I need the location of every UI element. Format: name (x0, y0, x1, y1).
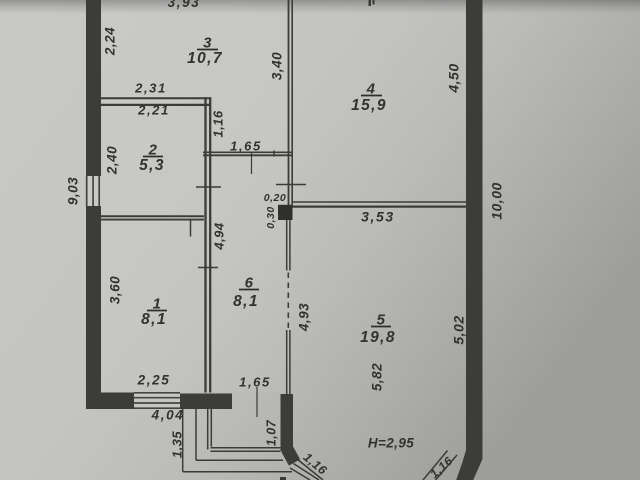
svg-text:3,40: 3,40 (270, 52, 285, 80)
svg-text:5,82: 5,82 (370, 363, 385, 391)
svg-text:2,31: 2,31 (134, 81, 167, 96)
svg-text:2,40: 2,40 (105, 146, 120, 175)
svg-text:2,24: 2,24 (103, 27, 118, 56)
svg-text:1,65: 1,65 (230, 139, 262, 154)
svg-text:3,53: 3,53 (361, 209, 395, 225)
svg-text:19,8: 19,8 (360, 329, 396, 346)
svg-text:0,30: 0,30 (265, 206, 277, 228)
svg-text:1,16: 1,16 (211, 110, 226, 138)
svg-text:8,1: 8,1 (233, 293, 259, 310)
svg-text:5,02: 5,02 (451, 315, 467, 344)
svg-text:4,93: 4,93 (297, 303, 312, 332)
svg-text:4,94: 4,94 (212, 222, 227, 251)
svg-text:10,00: 10,00 (489, 182, 505, 220)
svg-text:1,35: 1,35 (170, 431, 185, 459)
svg-text:8,1: 8,1 (141, 311, 167, 328)
svg-text:3,93: 3,93 (168, 0, 201, 10)
svg-text:1,07: 1,07 (265, 419, 279, 446)
svg-text:2,25: 2,25 (137, 373, 171, 388)
svg-text:3,60: 3,60 (108, 276, 123, 304)
svg-text:Н=2,95: Н=2,95 (368, 436, 414, 451)
svg-text:1,65: 1,65 (239, 375, 271, 390)
svg-text:4,50: 4,50 (446, 63, 462, 93)
svg-text:15,9: 15,9 (351, 97, 387, 114)
svg-text:4,04: 4,04 (151, 408, 185, 423)
svg-text:0,20: 0,20 (264, 192, 286, 204)
svg-text:2,21: 2,21 (137, 103, 170, 118)
svg-text:9,03: 9,03 (66, 177, 81, 205)
svg-text:5,3: 5,3 (139, 157, 165, 174)
svg-text:10,7: 10,7 (187, 50, 223, 67)
